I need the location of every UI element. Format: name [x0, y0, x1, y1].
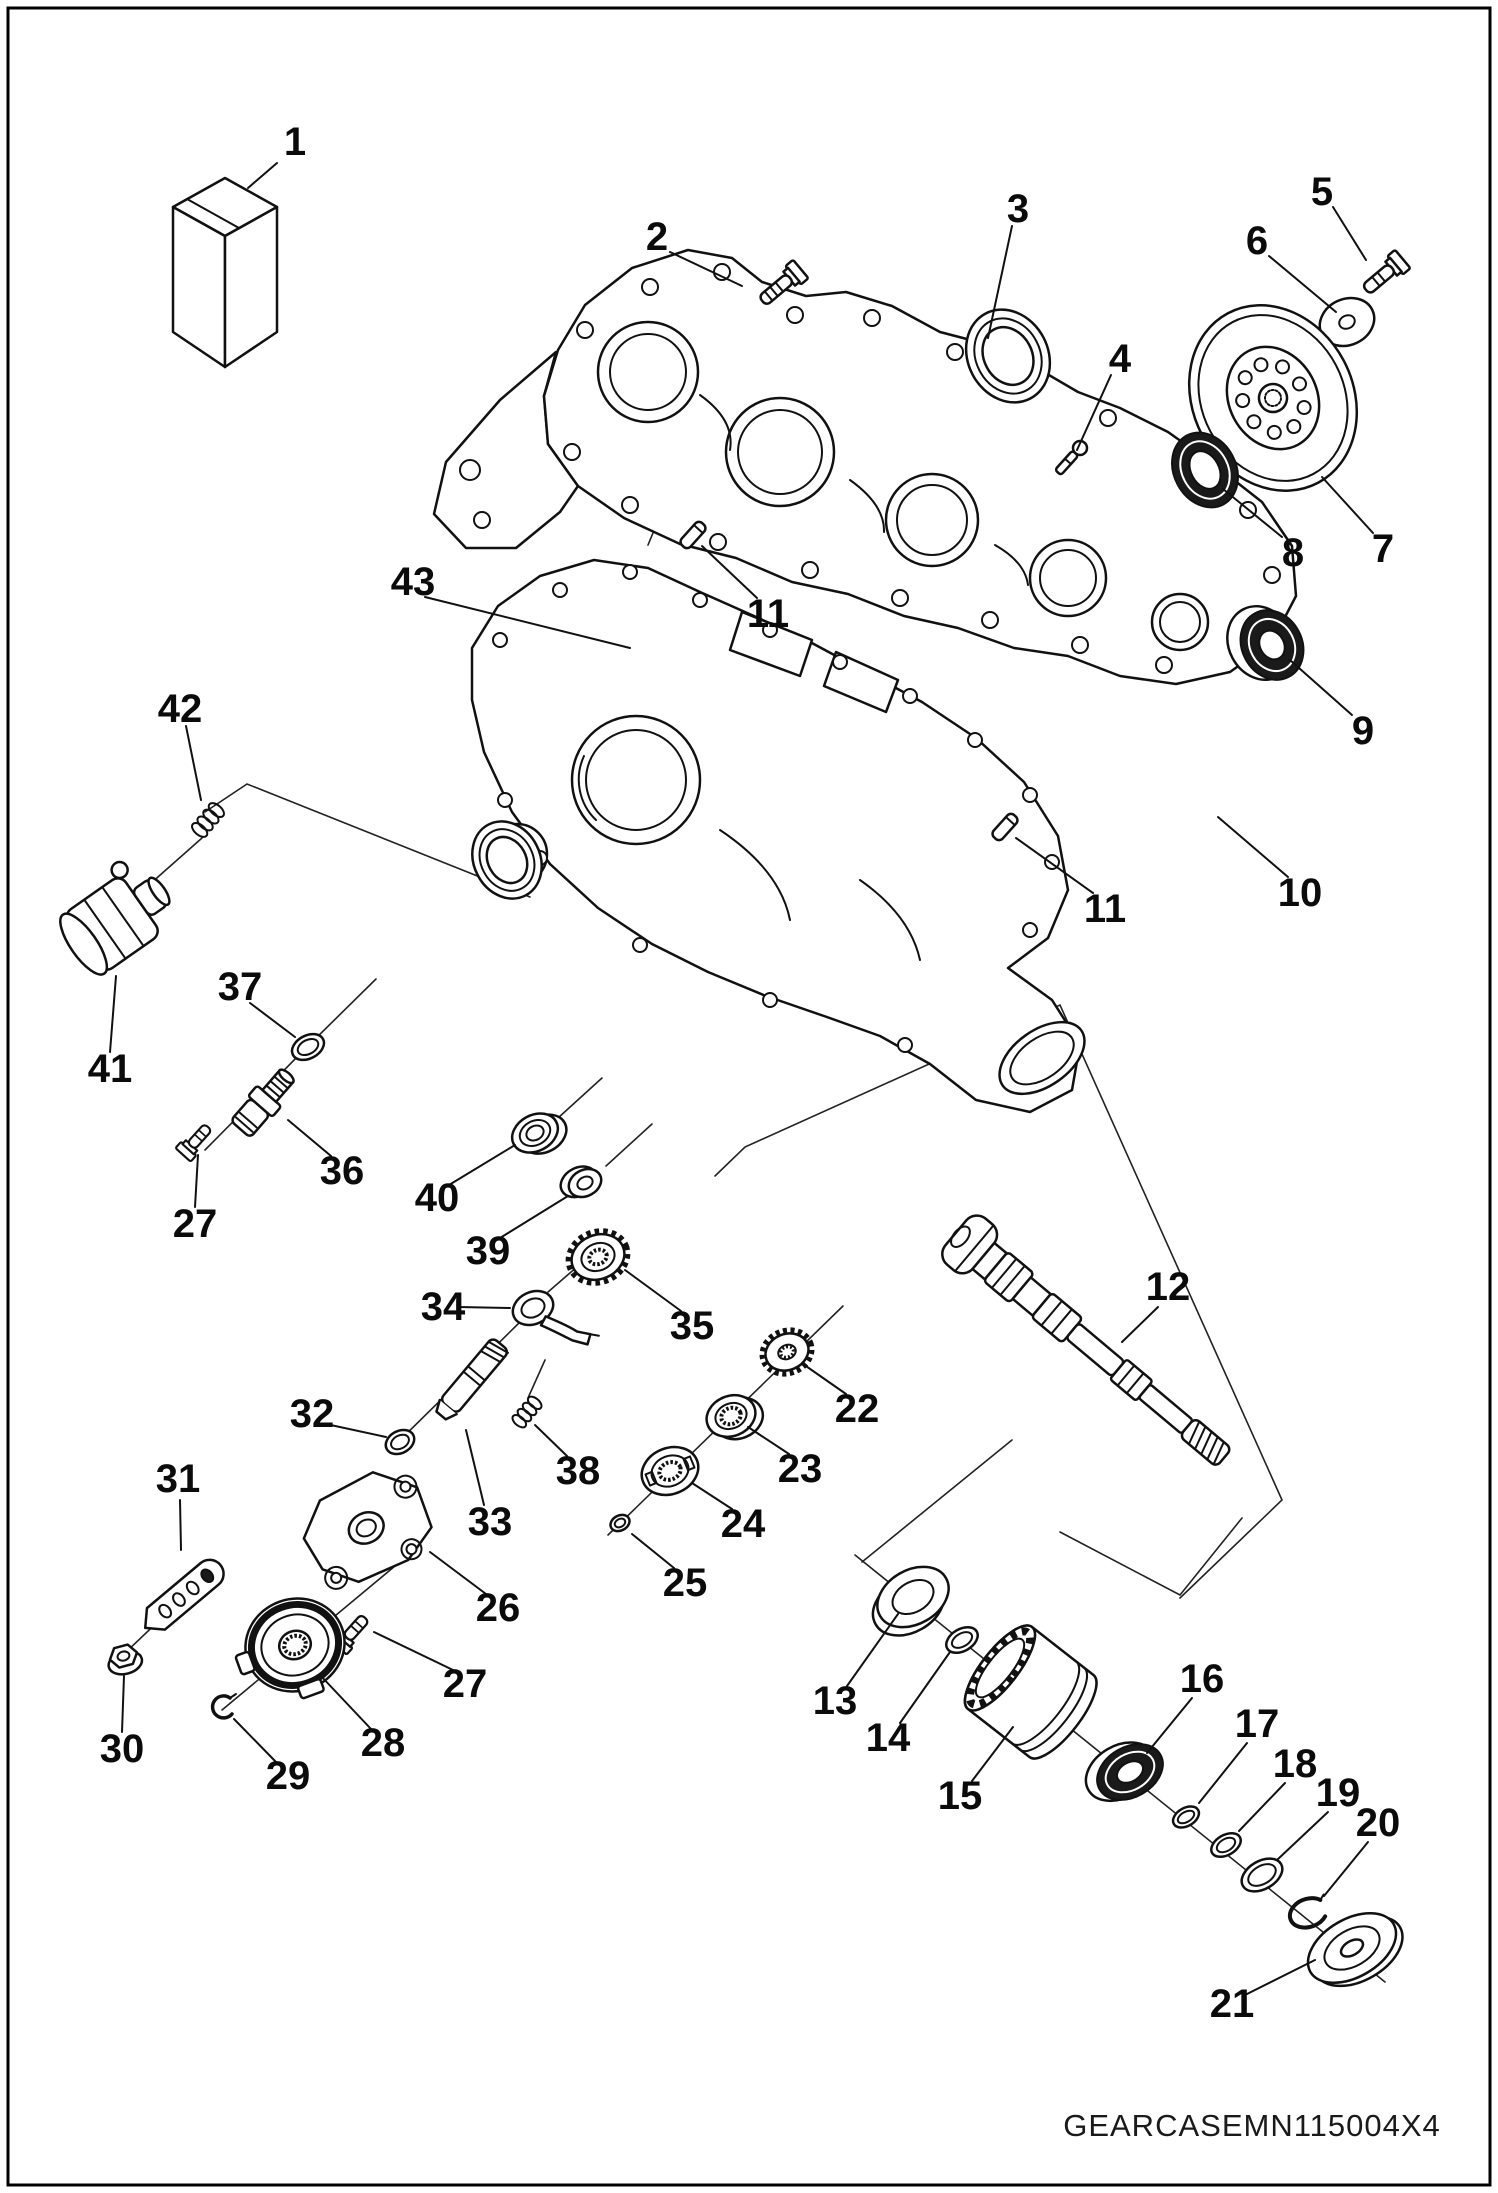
callout-label: 38 [556, 1449, 601, 1493]
callout-label: 42 [158, 687, 203, 731]
callout-label: 8 [1282, 531, 1304, 575]
callout-label: 22 [835, 1387, 880, 1431]
callout-label: 23 [778, 1447, 823, 1491]
callout-label: 34 [421, 1285, 466, 1329]
callout-label: 20 [1356, 1801, 1401, 1845]
callout-label: 2 [646, 215, 668, 259]
callout-label: 10 [1278, 871, 1323, 915]
callout-label: 26 [476, 1586, 521, 1630]
callout-label: 4 [1109, 337, 1132, 381]
callout-label: 12 [1146, 1265, 1191, 1309]
callout-label: 28 [361, 1721, 406, 1765]
parts-diagram-page: 1 2 3 4 5 6 7 8 9 10 11 11 12 13 14 [0, 0, 1498, 2193]
callout-label: 31 [156, 1457, 201, 1501]
callout-label: 14 [866, 1716, 911, 1760]
callout-label: 18 [1273, 1742, 1318, 1786]
callout-label: 16 [1180, 1657, 1225, 1701]
callout-label: 9 [1352, 709, 1374, 753]
callout-label: 24 [721, 1502, 766, 1546]
callout-label: 27 [443, 1662, 488, 1706]
callout-label: 19 [1316, 1771, 1361, 1815]
exploded-view-diagram: 1 2 3 4 5 6 7 8 9 10 11 11 12 13 14 [0, 0, 1498, 2193]
callout-label: 6 [1246, 219, 1268, 263]
shipping-box [173, 178, 277, 367]
callout-label: 33 [468, 1500, 513, 1544]
callout-label: 30 [100, 1727, 145, 1771]
callout-label: 15 [938, 1774, 983, 1818]
callout-label: 21 [1210, 1982, 1255, 2026]
callout-label: 11 [747, 592, 789, 636]
callout-label: 32 [290, 1392, 335, 1436]
callout-label: 27 [173, 1202, 218, 1246]
callout-label: 43 [391, 560, 436, 604]
callout-label: 25 [663, 1561, 708, 1605]
callout-label: 1 [284, 120, 306, 164]
callout-label: 35 [670, 1304, 715, 1348]
callout-label: 37 [218, 965, 263, 1009]
callout-label: 29 [266, 1754, 311, 1798]
callout-label: 3 [1007, 187, 1029, 231]
callout-label: 11 [1084, 887, 1126, 931]
callout-label: 40 [415, 1176, 460, 1220]
callout-label: 36 [320, 1149, 365, 1193]
callout-label: 13 [813, 1679, 858, 1723]
callout-label: 41 [88, 1047, 133, 1091]
callout-label: 5 [1311, 170, 1333, 214]
callout-label: 17 [1235, 1702, 1280, 1746]
callout-label: 7 [1372, 527, 1394, 571]
drawing-code: GEARCASEMN115004X4 [1063, 2108, 1441, 2143]
callout-label: 39 [466, 1229, 511, 1273]
